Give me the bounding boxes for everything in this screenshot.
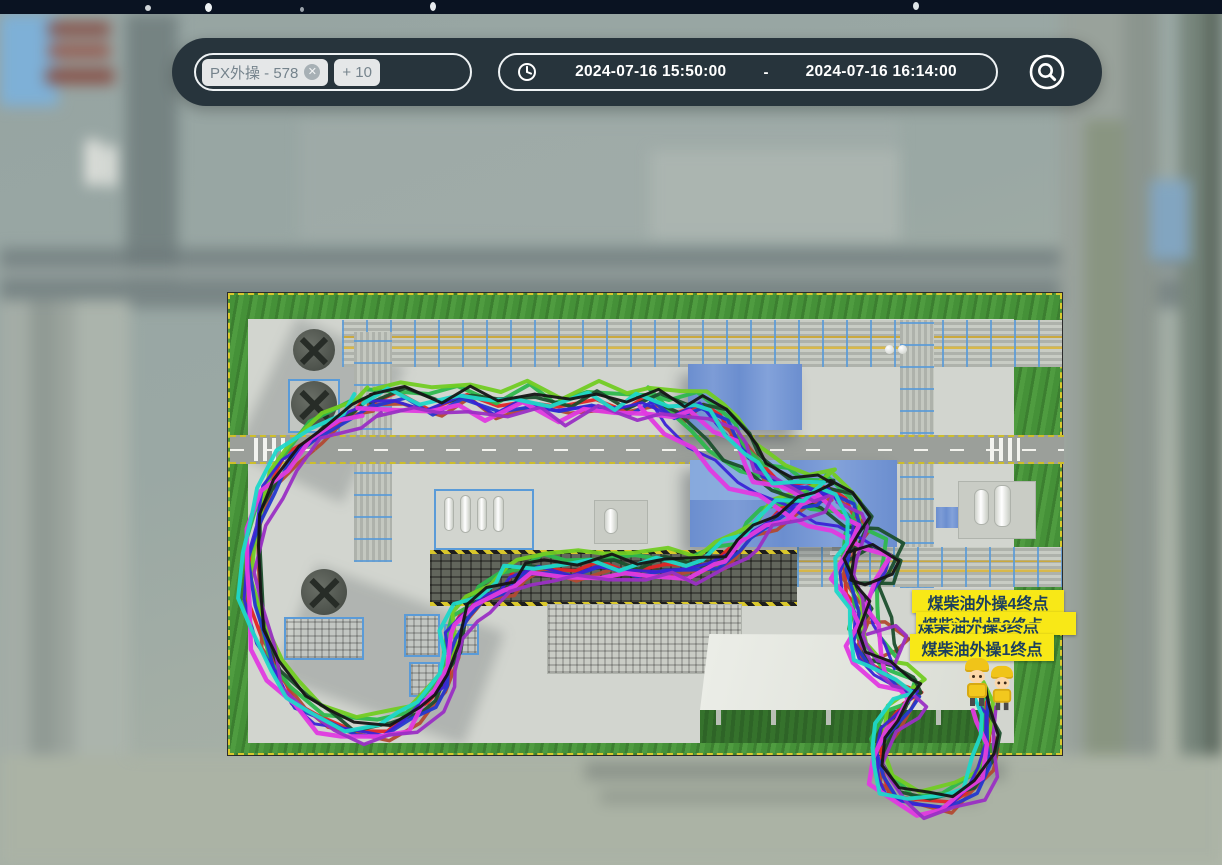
- post: [771, 710, 776, 725]
- bg-street-line: [0, 268, 1222, 278]
- skid-pad: [284, 617, 364, 660]
- worker-body: [967, 683, 987, 698]
- blue-building-annex: [690, 460, 790, 500]
- crosswalk: [254, 438, 288, 461]
- skid-pad: [409, 662, 440, 697]
- bg-block: [650, 150, 900, 240]
- bg-trees: [1085, 120, 1125, 820]
- time-range-picker[interactable]: 2024-07-16 15:50:00 - 2024-07-16 16:14:0…: [498, 53, 998, 91]
- worker-face: [995, 677, 1010, 689]
- skid-pad: [404, 614, 440, 657]
- crosswalk: [990, 438, 1020, 461]
- tank-agitator: [301, 569, 347, 615]
- facility-model[interactable]: [228, 293, 1062, 755]
- vessel: [460, 495, 471, 533]
- bg-street: [1124, 0, 1158, 865]
- tank-agitator: [293, 329, 335, 371]
- light-dot: [145, 5, 151, 11]
- worker-body: [993, 689, 1011, 703]
- warehouse-lawn: [700, 710, 990, 743]
- filter-overflow-label: + 10: [342, 64, 372, 81]
- person-filter-input[interactable]: PX外操 - 578 ✕ + 10: [194, 53, 472, 91]
- post: [826, 710, 831, 725]
- vessel: [493, 496, 504, 532]
- start-datetime[interactable]: 2024-07-16 15:50:00: [552, 63, 750, 81]
- circle-magnifier-icon: [1026, 51, 1068, 93]
- bg-containers: [48, 22, 110, 36]
- vessel: [444, 497, 454, 531]
- bg-block: [30, 300, 55, 755]
- hardhat-icon: [965, 658, 989, 670]
- pipe-rack-center: [430, 554, 797, 602]
- worker-face: [969, 670, 985, 683]
- worker-legs: [996, 703, 1001, 710]
- endpoint-label[interactable]: 煤柴油外操4终点: [912, 590, 1064, 613]
- light-dot: [913, 2, 919, 10]
- bg-street: [126, 14, 178, 284]
- tank-agitator: [291, 381, 337, 427]
- range-separator: -: [764, 64, 769, 81]
- light-dot: [300, 7, 304, 12]
- bg-block: [0, 300, 30, 755]
- filter-chip[interactable]: PX外操 - 578 ✕: [202, 59, 328, 86]
- sphere-light: [898, 345, 907, 354]
- blue-box-small: [936, 507, 959, 528]
- bg-containers: [46, 68, 114, 84]
- blue-building-top: [688, 364, 802, 430]
- white-tank: [994, 485, 1011, 527]
- bg-truck: [104, 146, 116, 186]
- clock-icon: [516, 61, 538, 83]
- skid-pad: [444, 624, 479, 655]
- worker-avatar[interactable]: [963, 658, 991, 706]
- worker-avatar[interactable]: [989, 666, 1015, 710]
- bg-containers: [48, 44, 110, 58]
- road-centerline: [230, 449, 1064, 451]
- endpoint-label-occluded[interactable]: 煤柴油外操2终点 煤柴油外操3终点: [916, 612, 1076, 635]
- end-datetime[interactable]: 2024-07-16 16:14:00: [783, 63, 981, 81]
- chip-close-icon[interactable]: ✕: [304, 64, 320, 80]
- post: [716, 710, 721, 725]
- bg-edge: [1204, 0, 1222, 865]
- road-horizontal: [230, 435, 1064, 464]
- filter-chip-label: PX外操 - 578: [210, 62, 298, 83]
- bg-block: [75, 300, 130, 755]
- bg-truck: [86, 140, 100, 185]
- light-dot: [205, 3, 212, 12]
- sphere-light: [885, 345, 894, 354]
- search-locate-button[interactable]: [1026, 51, 1068, 93]
- white-tank: [974, 489, 989, 525]
- endpoint-label[interactable]: 煤柴油外操1终点: [910, 634, 1054, 661]
- toolbar: PX外操 - 578 ✕ + 10 2024-07-16 15:50:00 - …: [172, 38, 1102, 106]
- bg-blue-roof: [1150, 180, 1190, 260]
- hardhat-icon: [991, 666, 1013, 677]
- bg-lot-rows: [585, 762, 1005, 780]
- light-dot: [430, 2, 436, 11]
- hazard-stripe: [430, 550, 797, 554]
- top-strip: [0, 0, 1222, 14]
- worker-legs: [970, 698, 975, 706]
- map-canvas[interactable]: 煤柴油外操4终点 煤柴油外操2终点 煤柴油外操3终点 煤柴油外操1终点 PX外操…: [0, 0, 1222, 865]
- vessel: [477, 497, 487, 531]
- bg-block: [55, 300, 75, 755]
- vessel: [604, 508, 618, 534]
- small-unit: [594, 500, 648, 544]
- post: [881, 710, 886, 725]
- pipe-rack-top: [342, 320, 1062, 367]
- filter-overflow-chip[interactable]: + 10: [334, 59, 380, 86]
- post: [936, 710, 941, 725]
- bg-lot-rows: [600, 790, 980, 804]
